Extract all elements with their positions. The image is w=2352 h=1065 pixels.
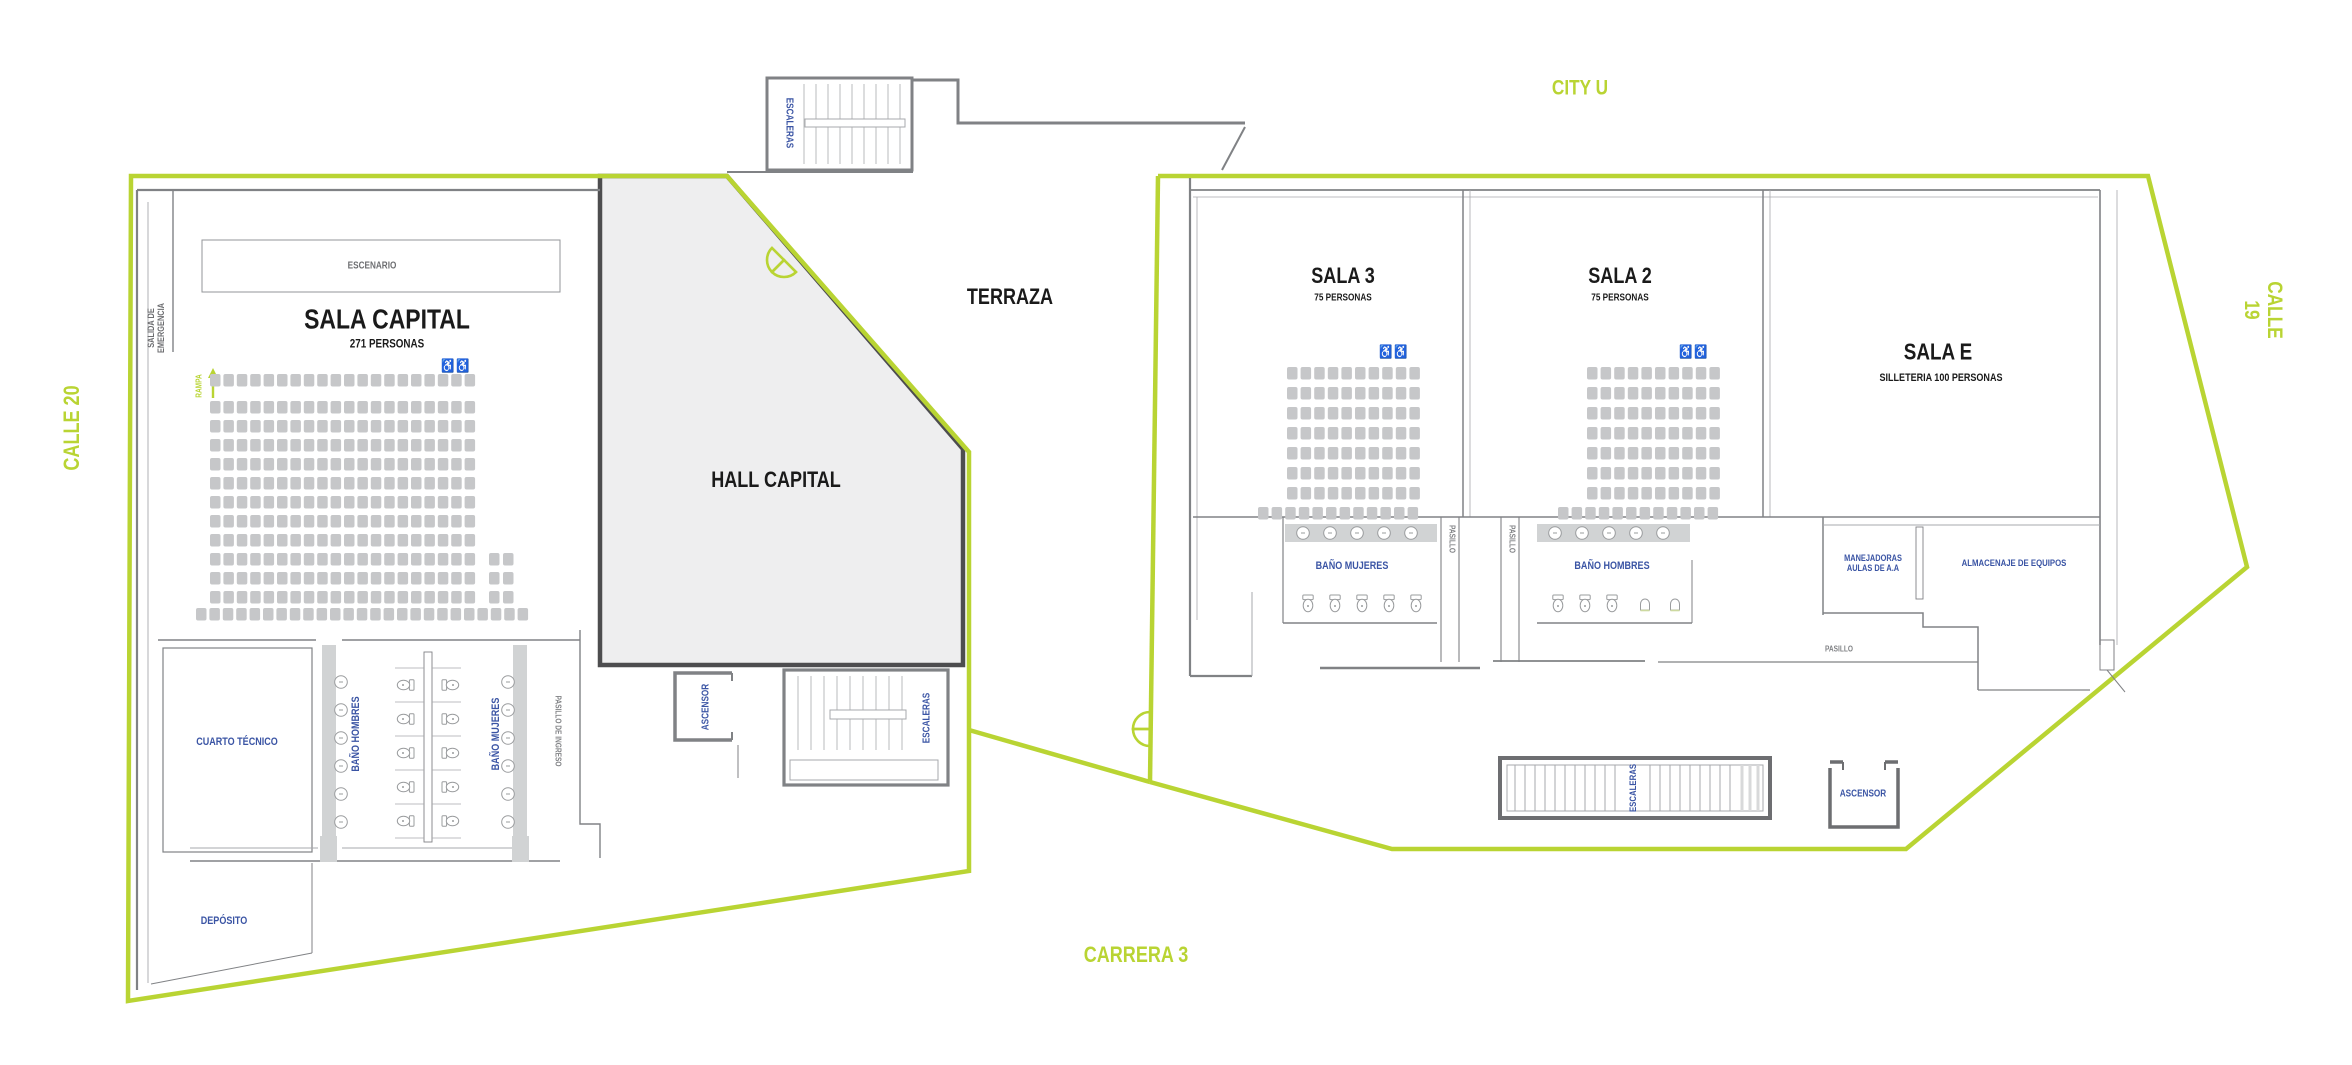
sala-e-capacity: SILLETERIA 100 PERSONAS <box>1880 372 2003 384</box>
bottom-stairs-label: ESCALERAS <box>1629 764 1639 812</box>
floor-plan: CALLE 20 CITY U CALLE 19 CARRERA 3 ESCEN… <box>0 0 2352 1065</box>
sala-3-capacity: 75 PERSONAS <box>1314 293 1371 304</box>
entry-corridor-label: PASILLO DE INGRESO <box>553 696 562 767</box>
boundary-marker-icon <box>1133 712 1150 746</box>
right-men-bathroom-label: BAÑO HOMBRES <box>1574 560 1649 572</box>
ahu-room-label: MANEJADORAS AULAS DE A.A <box>1844 554 1902 574</box>
top-stairs-label: ESCALERAS <box>784 98 795 149</box>
plan-drawing <box>0 0 2352 1065</box>
wall-strip <box>322 645 336 858</box>
corridor-label-a: PASILLO <box>1447 525 1456 553</box>
right-elevator-label: ASCENSOR <box>1840 789 1886 800</box>
hall-stairs-label: ESCALERAS <box>922 693 933 744</box>
wall-strip <box>320 836 337 862</box>
ramp-label: RAMPA <box>196 374 205 398</box>
equipment-storage-label: ALMACENAJE DE EQUIPOS <box>1962 559 2067 569</box>
property-boundary <box>128 176 2247 1001</box>
wheelchair-icon: ♿♿ <box>441 359 471 373</box>
wheelchair-icon: ♿♿ <box>1679 345 1709 359</box>
corridor-label-c: PASILLO <box>1825 646 1853 655</box>
sala-e-title: SALA E <box>1904 339 1972 364</box>
top-stairs <box>727 78 1245 172</box>
technical-room-label: CUARTO TÉCNICO <box>196 736 278 748</box>
wall-strip <box>512 836 529 862</box>
sala-2-title: SALA 2 <box>1588 264 1651 288</box>
wall-strip <box>513 645 527 858</box>
left-elevator-label: ASCENSOR <box>701 684 712 730</box>
storage-label: DEPÓSITO <box>201 915 247 927</box>
street-label-calle-20: CALLE 20 <box>60 385 84 470</box>
left-men-bathroom-label: BAÑO HOMBRES <box>350 696 362 771</box>
hall-capital-shape <box>600 176 963 665</box>
hall-capital-label: HALL CAPITAL <box>711 468 841 492</box>
right-women-bathroom-label: BAÑO MUJERES <box>1316 560 1389 572</box>
sala-2-capacity: 75 PERSONAS <box>1591 293 1648 304</box>
corridor-label-b: PASILLO <box>1507 525 1516 553</box>
street-label-calle-19: CALLE 19 <box>2240 274 2286 347</box>
wheelchair-icon: ♿♿ <box>1379 345 1409 359</box>
emergency-exit-label: SALIDA DE EMERGENCIA <box>147 303 167 353</box>
sala-capital-title: SALA CAPITAL <box>304 305 470 336</box>
street-label-city-u: CITY U <box>1552 76 1608 99</box>
street-label-carrera-3: CARRERA 3 <box>1084 943 1189 967</box>
sala-capital-capacity: 271 PERSONAS <box>350 337 424 350</box>
terrace-label: TERRAZA <box>967 285 1053 309</box>
left-women-bathroom-label: BAÑO MUJERES <box>490 698 502 771</box>
stage-label: ESCENARIO <box>348 261 397 272</box>
sala-3-title: SALA 3 <box>1311 264 1374 288</box>
